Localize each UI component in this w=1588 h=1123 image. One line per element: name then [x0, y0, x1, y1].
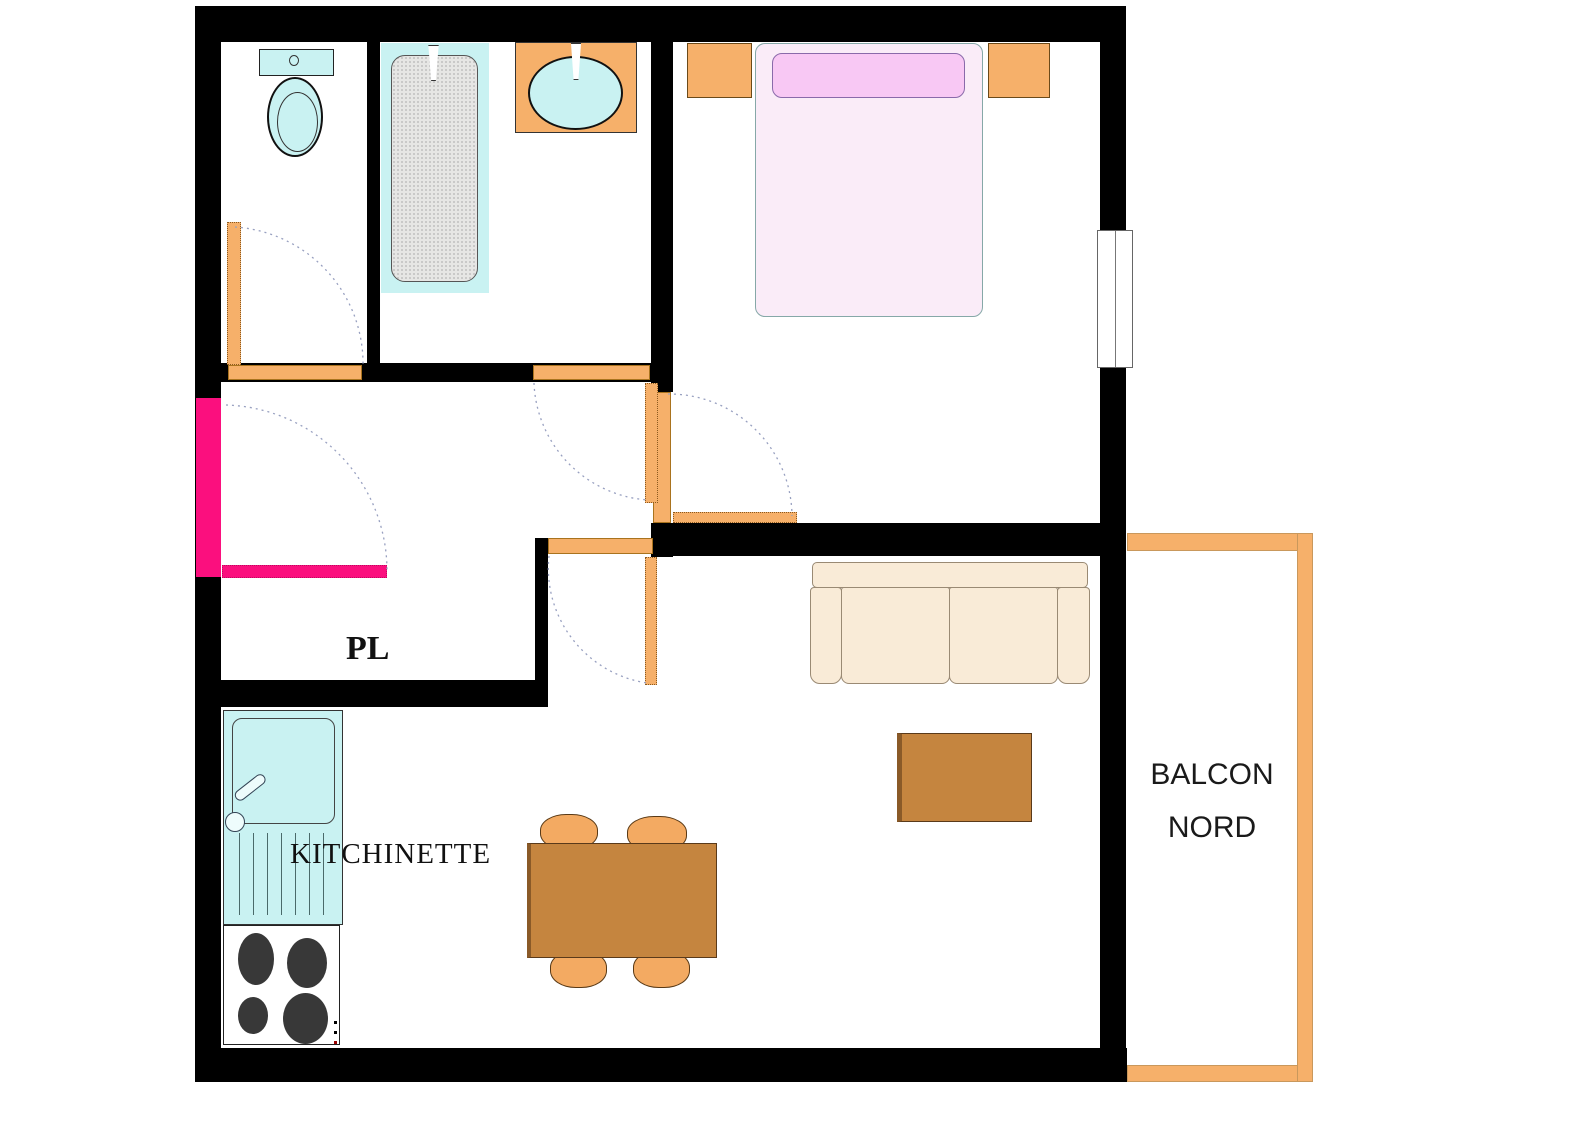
wall-wc-bathroom [367, 42, 380, 375]
sofa-backrest [812, 562, 1088, 588]
living-door-leaf [645, 557, 657, 685]
stove-burner-bottom-right [283, 993, 328, 1044]
wall-bedroom-bottom [673, 523, 1125, 556]
sofa-armrest-left [810, 587, 842, 684]
bedroom-window [1097, 230, 1133, 368]
stove-control-marks [334, 1021, 337, 1024]
bedroom-door-leaf [673, 512, 797, 523]
sofa-seat-right [949, 587, 1058, 684]
living-door [548, 538, 653, 554]
bathtub-inner [391, 55, 478, 282]
entrance-door-leaf [222, 565, 387, 578]
balcony-rail-top [1127, 533, 1298, 551]
kitchen-sink-basin [232, 718, 335, 824]
balcony-label-line2: NORD [1132, 811, 1292, 845]
wall-top [195, 6, 1126, 42]
dining-table [527, 843, 717, 958]
toilet-bowl-inner [277, 92, 318, 152]
kitchen-label: KITCHINETTE [290, 838, 491, 871]
balcony-label-line1: BALCON [1132, 758, 1292, 792]
floor-plan: PL KITCHINETTE BALCON NORD [0, 0, 1588, 1123]
bathroom-door-leaf [645, 383, 658, 503]
wall-bathroom-bedroom [651, 42, 673, 392]
wc-door-leaf [227, 222, 241, 365]
bed-pillow [772, 53, 965, 98]
sofa-seat-left [841, 587, 950, 684]
sofa-armrest-right [1057, 587, 1090, 684]
wall-bedroom-stub [651, 523, 673, 557]
nightstand-right [988, 43, 1050, 98]
bathroom-door [533, 365, 650, 380]
stove-burner-bottom-left [238, 997, 268, 1034]
balcony-rail-bottom [1127, 1065, 1298, 1082]
toilet-flush-button [289, 55, 299, 66]
stove-burner-top-right [287, 938, 327, 988]
window-mullion [1115, 231, 1116, 367]
kitchen-faucet-base [225, 812, 245, 832]
balcony-rail-right [1297, 533, 1313, 1082]
nightstand-left [687, 43, 752, 98]
entrance-door [196, 398, 221, 577]
wc-door [228, 365, 362, 380]
wall-hall-bottom [221, 680, 548, 707]
wall-bottom [195, 1048, 1127, 1082]
closet-label: PL [346, 630, 389, 668]
stove-burner-top-left [238, 933, 274, 985]
coffee-table [897, 733, 1032, 822]
balcony-label: BALCON NORD [1132, 758, 1292, 845]
